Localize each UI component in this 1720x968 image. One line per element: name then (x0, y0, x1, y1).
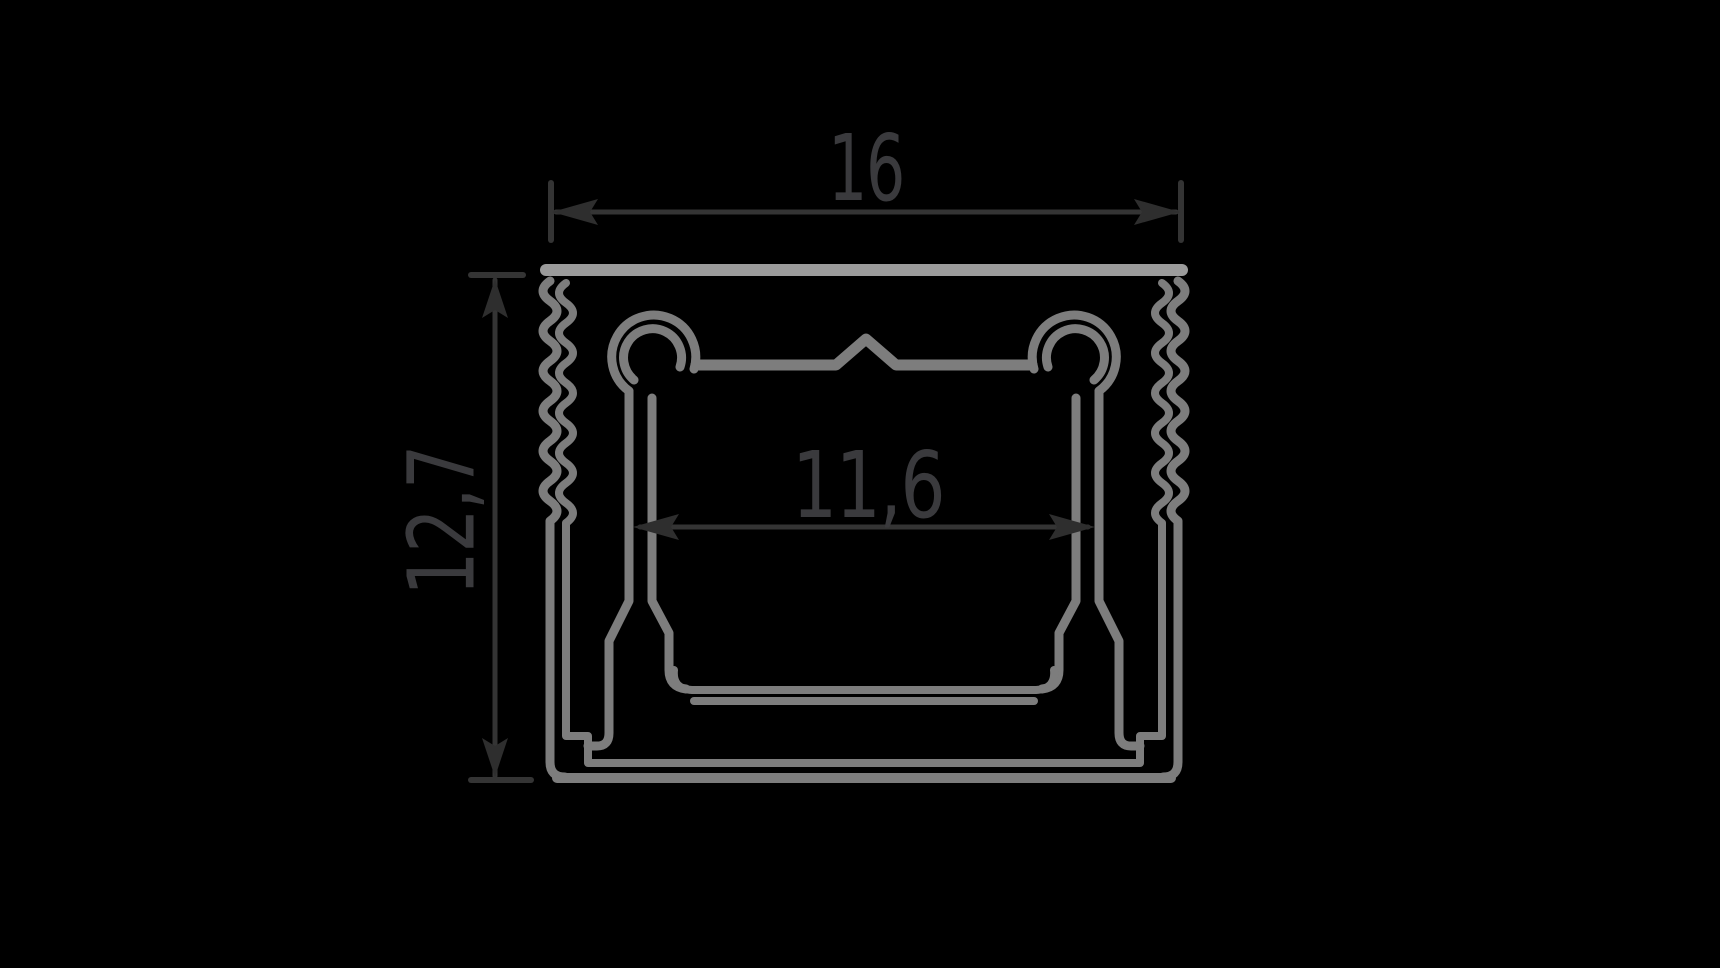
left-clip-wall-inner (652, 398, 686, 689)
right-hook-inner-arc (1046, 329, 1104, 380)
platform-top-edge (674, 670, 1054, 690)
profile-inner-ledge (696, 339, 1032, 365)
height-dimension-label: 12,7 (389, 446, 496, 596)
profile-technical-drawing: 16 12,7 11,6 (0, 0, 1720, 968)
drawing-canvas: 16 12,7 11,6 (0, 0, 1720, 968)
profile-right-outer-edge (1163, 281, 1185, 777)
profile-left-outer-edge (543, 281, 565, 777)
left-clip-wall-outer (588, 391, 629, 746)
left-hook-inner-arc (624, 329, 682, 380)
dimension-overall-height: 12,7 (389, 275, 532, 780)
profile-right-inner-edge (1140, 283, 1169, 762)
dimension-inner-width: 11,6 (633, 432, 1095, 540)
profile-left-inner-edge (559, 283, 588, 762)
dimension-overall-width: 16 (551, 115, 1181, 240)
right-clip-wall-outer (1099, 391, 1140, 746)
inner-width-dimension-label: 11,6 (792, 432, 944, 539)
width-dimension-label: 16 (828, 115, 904, 222)
right-clip-wall-inner (1042, 398, 1076, 689)
